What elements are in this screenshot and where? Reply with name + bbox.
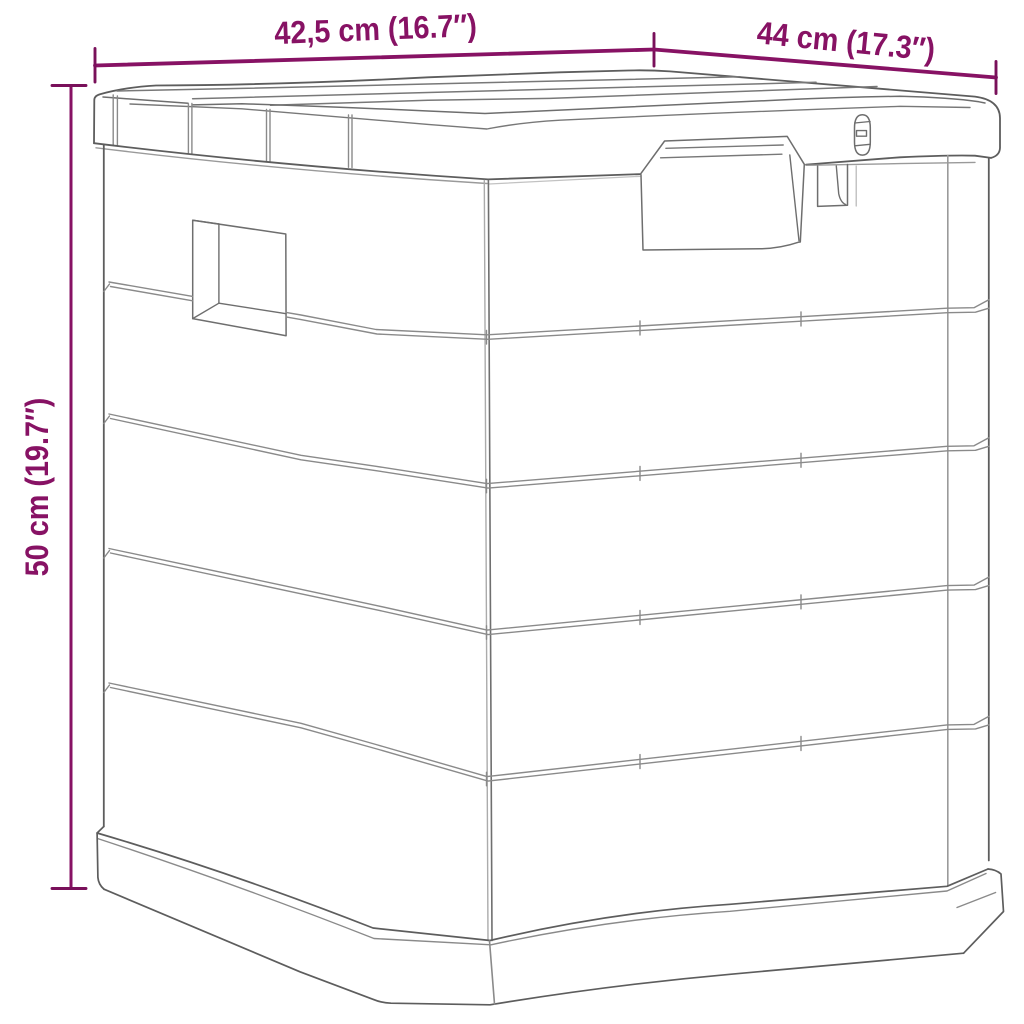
svg-text:50 cm (19.7″): 50 cm (19.7″) <box>20 398 56 577</box>
svg-text:42,5 cm (16.7″): 42,5 cm (16.7″) <box>274 8 478 52</box>
